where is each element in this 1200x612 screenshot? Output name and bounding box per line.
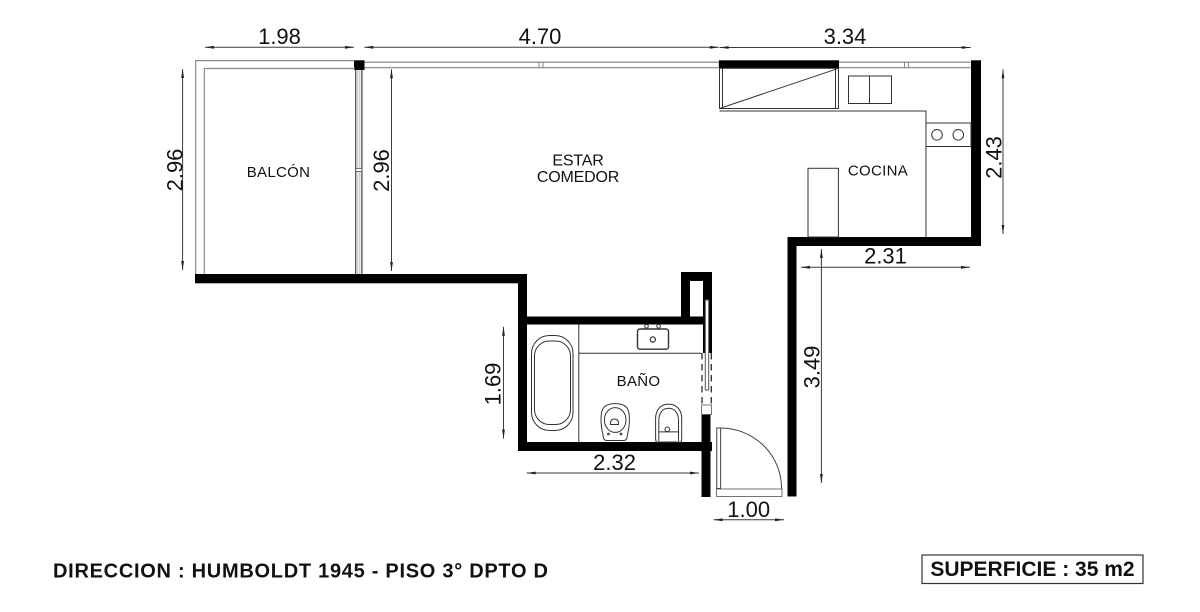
svg-text:2.31: 2.31 xyxy=(864,243,907,268)
svg-text:3.34: 3.34 xyxy=(824,24,867,49)
svg-text:2.43: 2.43 xyxy=(981,136,1006,179)
svg-text:2.96: 2.96 xyxy=(369,149,394,192)
svg-text:BALCÓN: BALCÓN xyxy=(247,164,311,181)
svg-text:1.98: 1.98 xyxy=(258,24,301,49)
svg-text:DIRECCION : HUMBOLDT 1945 - PI: DIRECCION : HUMBOLDT 1945 - PISO 3° DPTO… xyxy=(53,561,549,583)
svg-text:BAÑO: BAÑO xyxy=(617,373,661,390)
svg-text:1.00: 1.00 xyxy=(727,497,770,522)
svg-text:3.49: 3.49 xyxy=(800,346,825,389)
svg-text:COCINA: COCINA xyxy=(848,163,908,180)
svg-text:1.69: 1.69 xyxy=(481,363,506,406)
svg-text:2.96: 2.96 xyxy=(162,149,187,192)
svg-text:COMEDOR: COMEDOR xyxy=(537,169,619,186)
svg-text:SUPERFICIE : 35 m2: SUPERFICIE : 35 m2 xyxy=(930,558,1134,581)
svg-text:ESTAR: ESTAR xyxy=(552,153,603,170)
svg-text:4.70: 4.70 xyxy=(519,24,562,49)
svg-text:2.32: 2.32 xyxy=(593,450,636,475)
